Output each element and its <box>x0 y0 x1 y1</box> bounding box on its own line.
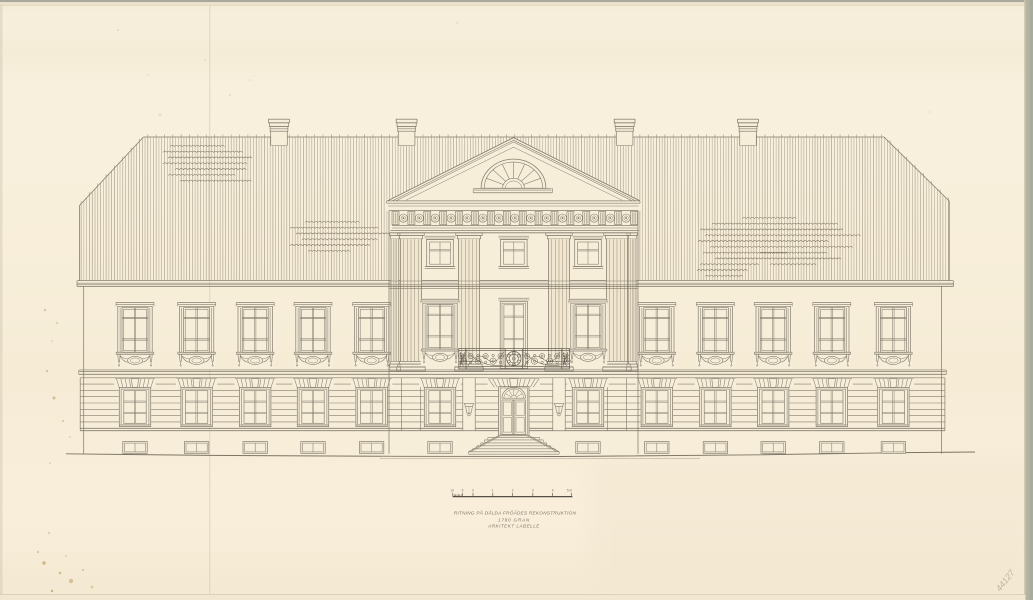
svg-text:0: 0 <box>472 488 474 492</box>
svg-text:2: 2 <box>512 488 514 492</box>
svg-text:ARKITEKT LABELLE: ARKITEKT LABELLE <box>487 523 540 528</box>
svg-text:1780 GRAN: 1780 GRAN <box>498 518 530 523</box>
svg-text:3: 3 <box>532 488 534 492</box>
svg-text:RITNING PÅ DÅLDA FRÖÄDES R: RITNING PÅ DÅLDA FRÖÄDES REKONSTRUKTION <box>454 510 577 516</box>
svg-text:1: 1 <box>492 488 494 492</box>
svg-text:5 m: 5 m <box>567 488 573 492</box>
svg-text:5: 5 <box>462 488 464 492</box>
svg-text:4: 4 <box>552 488 554 492</box>
svg-text:10: 10 <box>450 488 454 492</box>
